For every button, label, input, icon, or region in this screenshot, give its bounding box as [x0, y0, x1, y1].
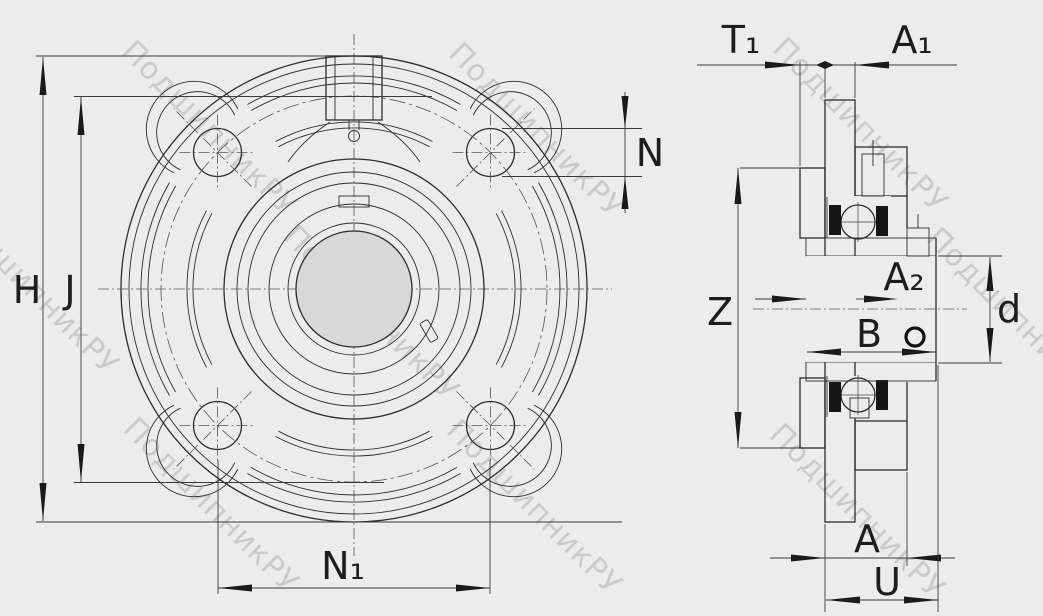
watermark: ПодшипникРУ [114, 34, 303, 223]
watermark: ПодшипникРУ [762, 417, 951, 606]
shaft-bore [296, 231, 412, 347]
watermark: ПодшипникРУ [441, 36, 630, 225]
dim-label-z: Z [707, 290, 733, 334]
drawing-svg: ПодшипникРУ ПодшипникРУ ПодшипникРУ Подш… [0, 0, 1043, 616]
dim-label-a1: A₁ [891, 18, 932, 62]
watermark: ПодшипникРУ [116, 411, 305, 600]
housing-lower-section [855, 421, 907, 470]
dim-label-n1: N₁ [321, 544, 365, 588]
bearing-technical-drawing: ПодшипникРУ ПодшипникРУ ПодшипникРУ Подш… [0, 0, 1043, 616]
dim-label-h: H [13, 268, 42, 312]
dim-label-t1: T₁ [721, 18, 760, 62]
dim-label-d: d [997, 287, 1021, 331]
dim-label-n: N [636, 131, 664, 175]
grease-fitting [288, 56, 420, 162]
cartridge-lip-upper [800, 168, 825, 238]
dim-label-j: J [62, 268, 75, 312]
watermark: ПодшипникРУ [439, 413, 628, 602]
dim-label-a2: A₂ [883, 255, 924, 299]
dim-label-a: A [854, 517, 880, 561]
dimension-Z: Z [707, 168, 800, 448]
dim-label-u: U [873, 560, 901, 604]
dim-label-b: B [856, 312, 882, 356]
